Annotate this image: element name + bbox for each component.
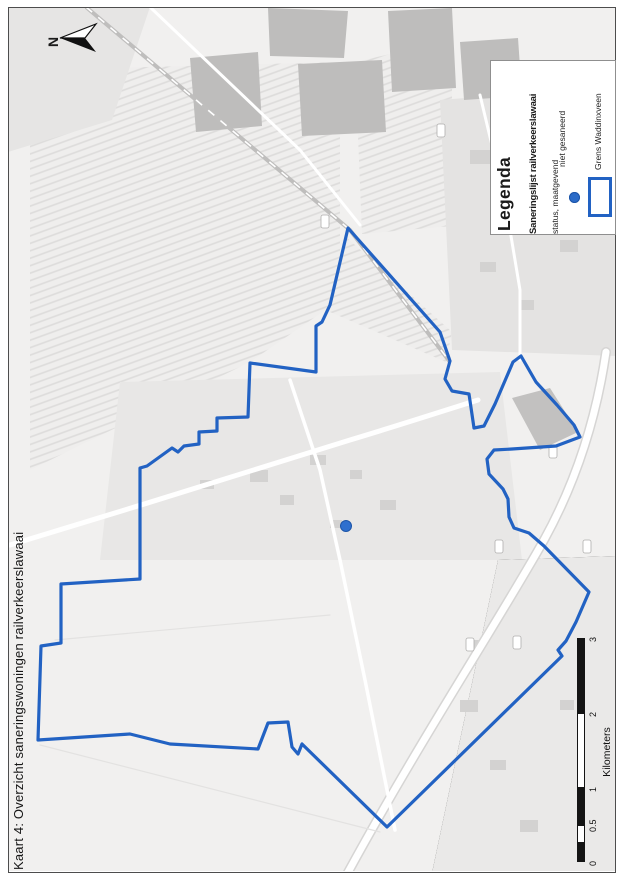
scalebar-tick-0: 0 [589,861,598,866]
legend-point-label: niet gesaneerd [558,111,567,167]
legend-boundary-symbol [588,177,612,217]
scalebar-tick-3: 3 [589,637,598,642]
scalebar-unit: Kilometers [600,702,614,802]
legend-title: Legenda [495,157,513,231]
legend-boundary-label: Grens Waddinxveen [594,93,603,170]
scalebar [577,638,585,862]
road-shield-icon [513,636,521,649]
road-shield-icon [437,124,445,137]
north-label: N [46,37,61,47]
scalebar-segment [577,843,585,862]
scalebar-segment [577,825,585,843]
legend-status-label: status, maatgevend [551,160,560,234]
road-shield-icon [321,215,329,228]
road-shield-icon [583,540,591,553]
scalebar-segment [577,713,585,788]
scalebar-segment [577,638,585,713]
scalebar-tick-05: 0.5 [589,819,598,832]
scalebar-segment [577,788,585,825]
legend-subtitle: Saneringslijst railverkeerslawaai [529,94,539,234]
scalebar-tick-2: 2 [589,712,598,717]
north-arrow-icon [58,22,98,54]
road-shield-icon [466,638,474,651]
map-marker [341,521,352,532]
road-shield-icon [495,540,503,553]
scalebar-tick-1: 1 [589,787,598,792]
legend-point-symbol [569,192,580,203]
page-title: Kaart 4: Overzicht saneringswoningen rai… [12,532,26,870]
